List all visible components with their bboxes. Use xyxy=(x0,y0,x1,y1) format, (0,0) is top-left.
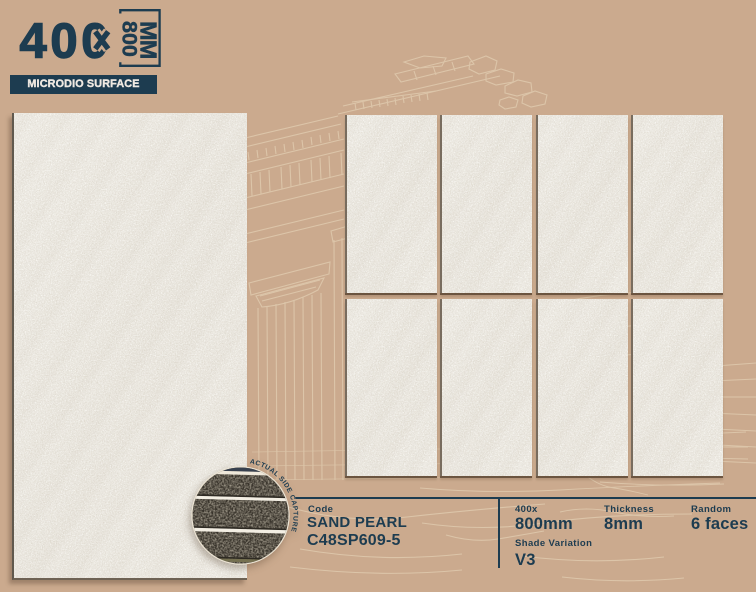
svg-text:MM: MM xyxy=(135,21,161,59)
